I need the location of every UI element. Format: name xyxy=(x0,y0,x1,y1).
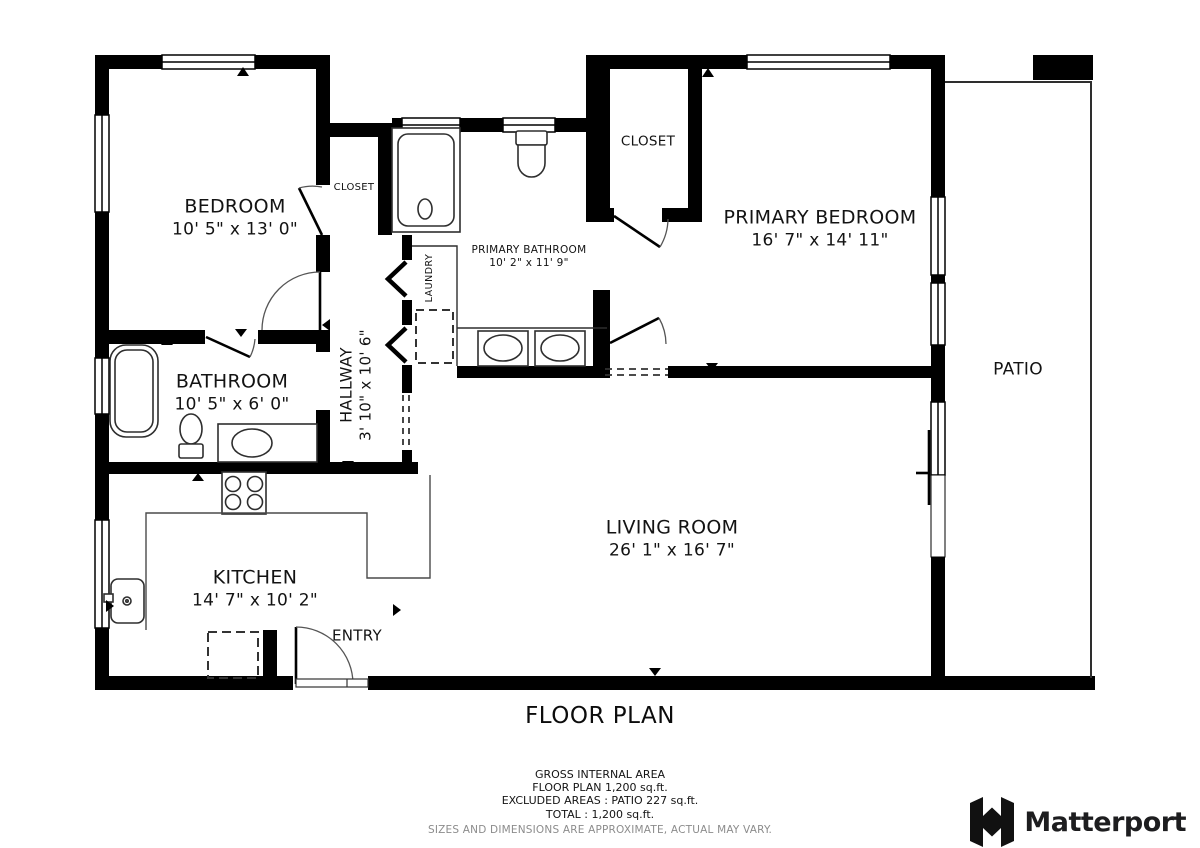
primary-bathroom-dims: 10' 2" x 11' 9" xyxy=(472,257,587,270)
room-label-patio: PATIO xyxy=(993,359,1043,380)
disclaimer-text: SIZES AND DIMENSIONS ARE APPROXIMATE, AC… xyxy=(428,824,772,836)
kitchen-name: KITCHEN xyxy=(192,567,318,591)
area-line-excluded: EXCLUDED AREAS : PATIO 227 sq.ft. xyxy=(502,794,699,807)
room-label-primary-closet: CLOSET xyxy=(621,134,675,151)
area-line-gross: GROSS INTERNAL AREA xyxy=(502,768,699,781)
bathroom-dims: 10' 5" x 6' 0" xyxy=(175,394,290,415)
floorplan-drawing xyxy=(0,0,1200,700)
page-title: FLOOR PLAN xyxy=(525,703,675,729)
primary-bedroom-name: PRIMARY BEDROOM xyxy=(724,207,917,231)
primary-bathroom-name: PRIMARY BATHROOM xyxy=(472,244,587,257)
primary-bedroom-dims: 16' 7" x 14' 11" xyxy=(724,230,917,251)
hallway-name: HALLWAY xyxy=(337,329,357,441)
room-label-kitchen: KITCHEN 14' 7" x 10' 2" xyxy=(192,567,318,612)
area-summary: GROSS INTERNAL AREA FLOOR PLAN 1,200 sq.… xyxy=(502,768,699,821)
entry-threshold xyxy=(296,679,368,687)
bathroom-name: BATHROOM xyxy=(175,371,290,395)
toilet xyxy=(180,414,202,444)
room-label-entry: ENTRY xyxy=(332,627,382,646)
room-label-primary-bedroom: PRIMARY BEDROOM 16' 7" x 14' 11" xyxy=(724,207,917,252)
brand-lockup: Matterport xyxy=(970,797,1186,847)
living-room-name: LIVING ROOM xyxy=(606,517,739,541)
room-label-primary-bathroom: PRIMARY BATHROOM 10' 2" x 11' 9" xyxy=(472,244,587,270)
room-label-bathroom: BATHROOM 10' 5" x 6' 0" xyxy=(175,371,290,416)
brand-name: Matterport xyxy=(1024,807,1186,838)
floorplan-page: BEDROOM 10' 5" x 13' 0" CLOSET PRIMARY B… xyxy=(0,0,1200,848)
room-label-laundry: LAUNDRY xyxy=(424,254,436,303)
living-room-dims: 26' 1" x 16' 7" xyxy=(606,540,739,561)
area-line-total: TOTAL : 1,200 sq.ft. xyxy=(502,808,699,821)
hallway-dims: 3' 10" x 10' 6" xyxy=(357,329,376,441)
primary-toilet xyxy=(516,131,547,145)
kitchen-dims: 14' 7" x 10' 2" xyxy=(192,590,318,611)
bedroom-dims: 10' 5" x 13' 0" xyxy=(172,219,298,240)
area-line-floorplan: FLOOR PLAN 1,200 sq.ft. xyxy=(502,781,699,794)
matterport-logo-icon xyxy=(970,797,1014,847)
room-label-bedroom: BEDROOM 10' 5" x 13' 0" xyxy=(172,196,298,241)
room-label-living-room: LIVING ROOM 26' 1" x 16' 7" xyxy=(606,517,739,562)
bedroom-name: BEDROOM xyxy=(172,196,298,220)
room-label-hallway: HALLWAY 3' 10" x 10' 6" xyxy=(337,329,376,441)
room-label-bedroom-closet: CLOSET xyxy=(334,182,375,195)
